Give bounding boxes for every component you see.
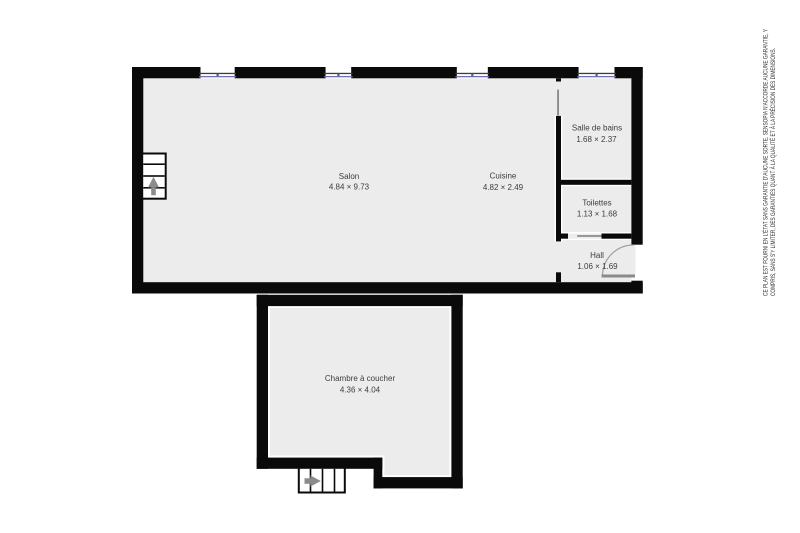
svg-text:Toilettes: Toilettes [582,198,611,207]
svg-text:1.06 × 1.69: 1.06 × 1.69 [577,262,618,271]
svg-text:4.84 × 9.73: 4.84 × 9.73 [329,182,370,191]
svg-text:Chambre à coucher: Chambre à coucher [325,374,396,383]
svg-text:Salle de bains: Salle de bains [572,124,622,133]
svg-text:Salon: Salon [339,172,359,181]
svg-text:1.68 × 2.37: 1.68 × 2.37 [576,135,617,144]
svg-text:4.36 × 4.04: 4.36 × 4.04 [340,385,381,394]
svg-text:1.13 × 1.68: 1.13 × 1.68 [577,209,618,218]
svg-text:Cuisine: Cuisine [490,172,517,181]
svg-text:CE PLAN EST FOURNI EN L’ÉTAT S: CE PLAN EST FOURNI EN L’ÉTAT SANS GARANT… [761,29,770,296]
svg-text:Hall: Hall [590,251,604,260]
svg-text:COMPRIS, SANS S’Y LIMITER, DES: COMPRIS, SANS S’Y LIMITER, DES GARANTIES… [768,48,777,296]
svg-text:4.82 × 2.49: 4.82 × 2.49 [483,183,524,192]
